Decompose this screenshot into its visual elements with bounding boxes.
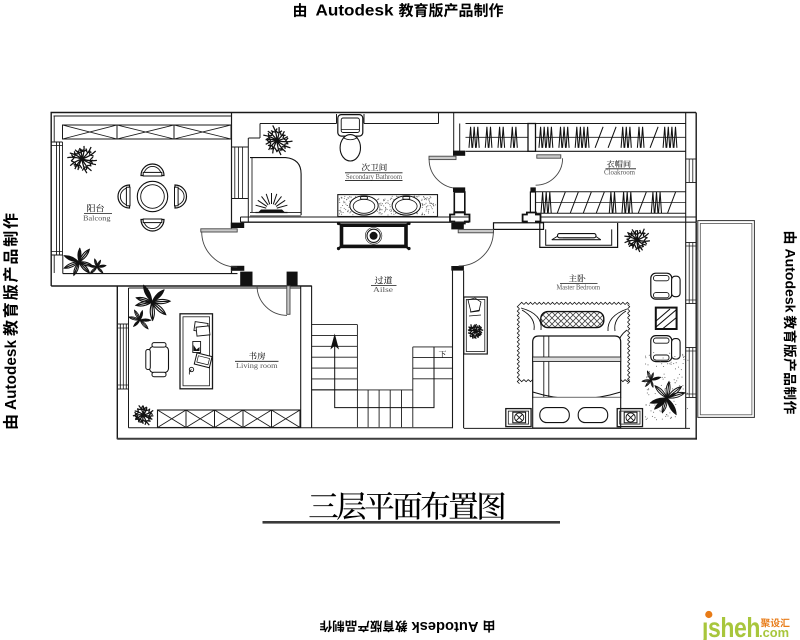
svg-text:Living room: Living room: [236, 361, 278, 370]
svg-text:Balcong: Balcong: [83, 214, 111, 223]
svg-text:Secondary Bathroom: Secondary Bathroom: [346, 173, 402, 181]
svg-text:Cloakroom: Cloakroom: [604, 169, 636, 177]
svg-text:Autodesk: Autodesk: [3, 340, 20, 410]
svg-text:Autodesk: Autodesk: [411, 618, 479, 634]
svg-text:Autodesk: Autodesk: [316, 2, 394, 19]
svg-text:Ailse: Ailse: [373, 285, 394, 294]
svg-text:.com: .com: [759, 625, 789, 640]
svg-text:Autodesk: Autodesk: [783, 249, 799, 313]
svg-text:Master Bedroom: Master Bedroom: [557, 284, 601, 292]
